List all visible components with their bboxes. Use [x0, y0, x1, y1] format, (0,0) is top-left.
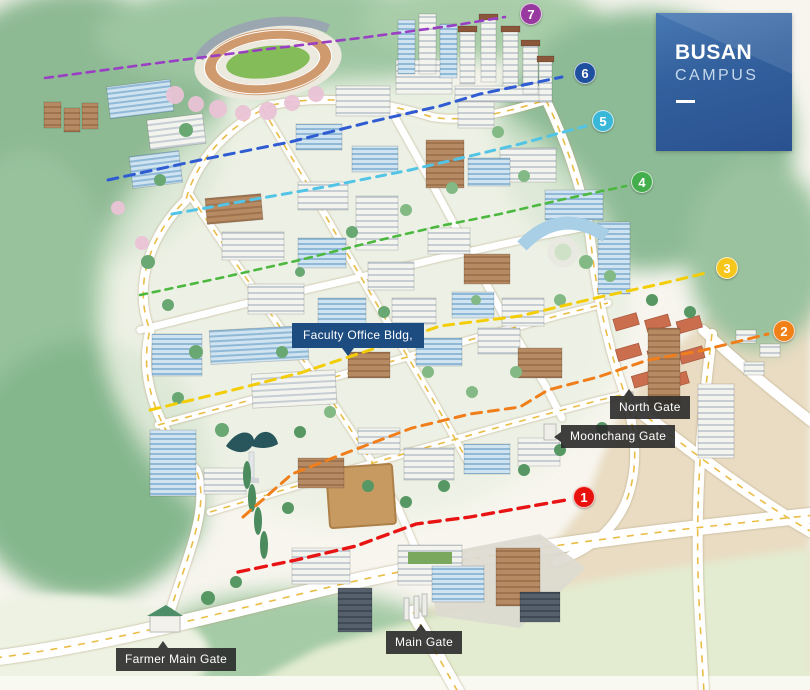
pointer-up-icon: [416, 624, 426, 631]
busan-campus-map-page: 1 2 3 4 5 6 7 Faculty Office Bldg, North…: [0, 0, 810, 690]
route-marker-6[interactable]: 6: [574, 62, 596, 84]
main-gate-label-text: Main Gate: [395, 635, 453, 649]
campus-badge-title: BUSAN: [675, 41, 792, 65]
faculty-office-bldg-label: Faculty Office Bldg,: [292, 323, 424, 348]
route-marker-7[interactable]: 7: [520, 3, 542, 25]
badge-dash-divider: [676, 100, 695, 103]
faculty-office-bldg-label-text: Faculty Office Bldg,: [303, 328, 413, 342]
pointer-left-icon: [554, 432, 561, 442]
route-marker-1[interactable]: 1: [573, 486, 595, 508]
moonchang-gate-label-text: Moonchang Gate: [570, 429, 666, 443]
route-marker-3[interactable]: 3: [716, 257, 738, 279]
moonchang-gate-label: Moonchang Gate: [561, 425, 675, 448]
route-marker-4[interactable]: 4: [631, 171, 653, 193]
campus-badge-subtitle: CAMPUS: [675, 67, 792, 85]
route-marker-2[interactable]: 2: [773, 320, 795, 342]
pointer-down-icon: [342, 348, 354, 356]
farmer-main-gate-label: Farmer Main Gate: [116, 648, 236, 671]
route-marker-5[interactable]: 5: [592, 110, 614, 132]
campus-badge: BUSAN CAMPUS: [656, 13, 792, 151]
pointer-up-icon: [624, 389, 634, 396]
north-gate-label-text: North Gate: [619, 400, 681, 414]
ring-garden: [551, 240, 575, 264]
north-gate-label: North Gate: [610, 396, 690, 419]
farmer-main-gate-label-text: Farmer Main Gate: [125, 652, 227, 666]
main-gate-label: Main Gate: [386, 631, 462, 654]
pointer-up-icon: [158, 641, 168, 648]
